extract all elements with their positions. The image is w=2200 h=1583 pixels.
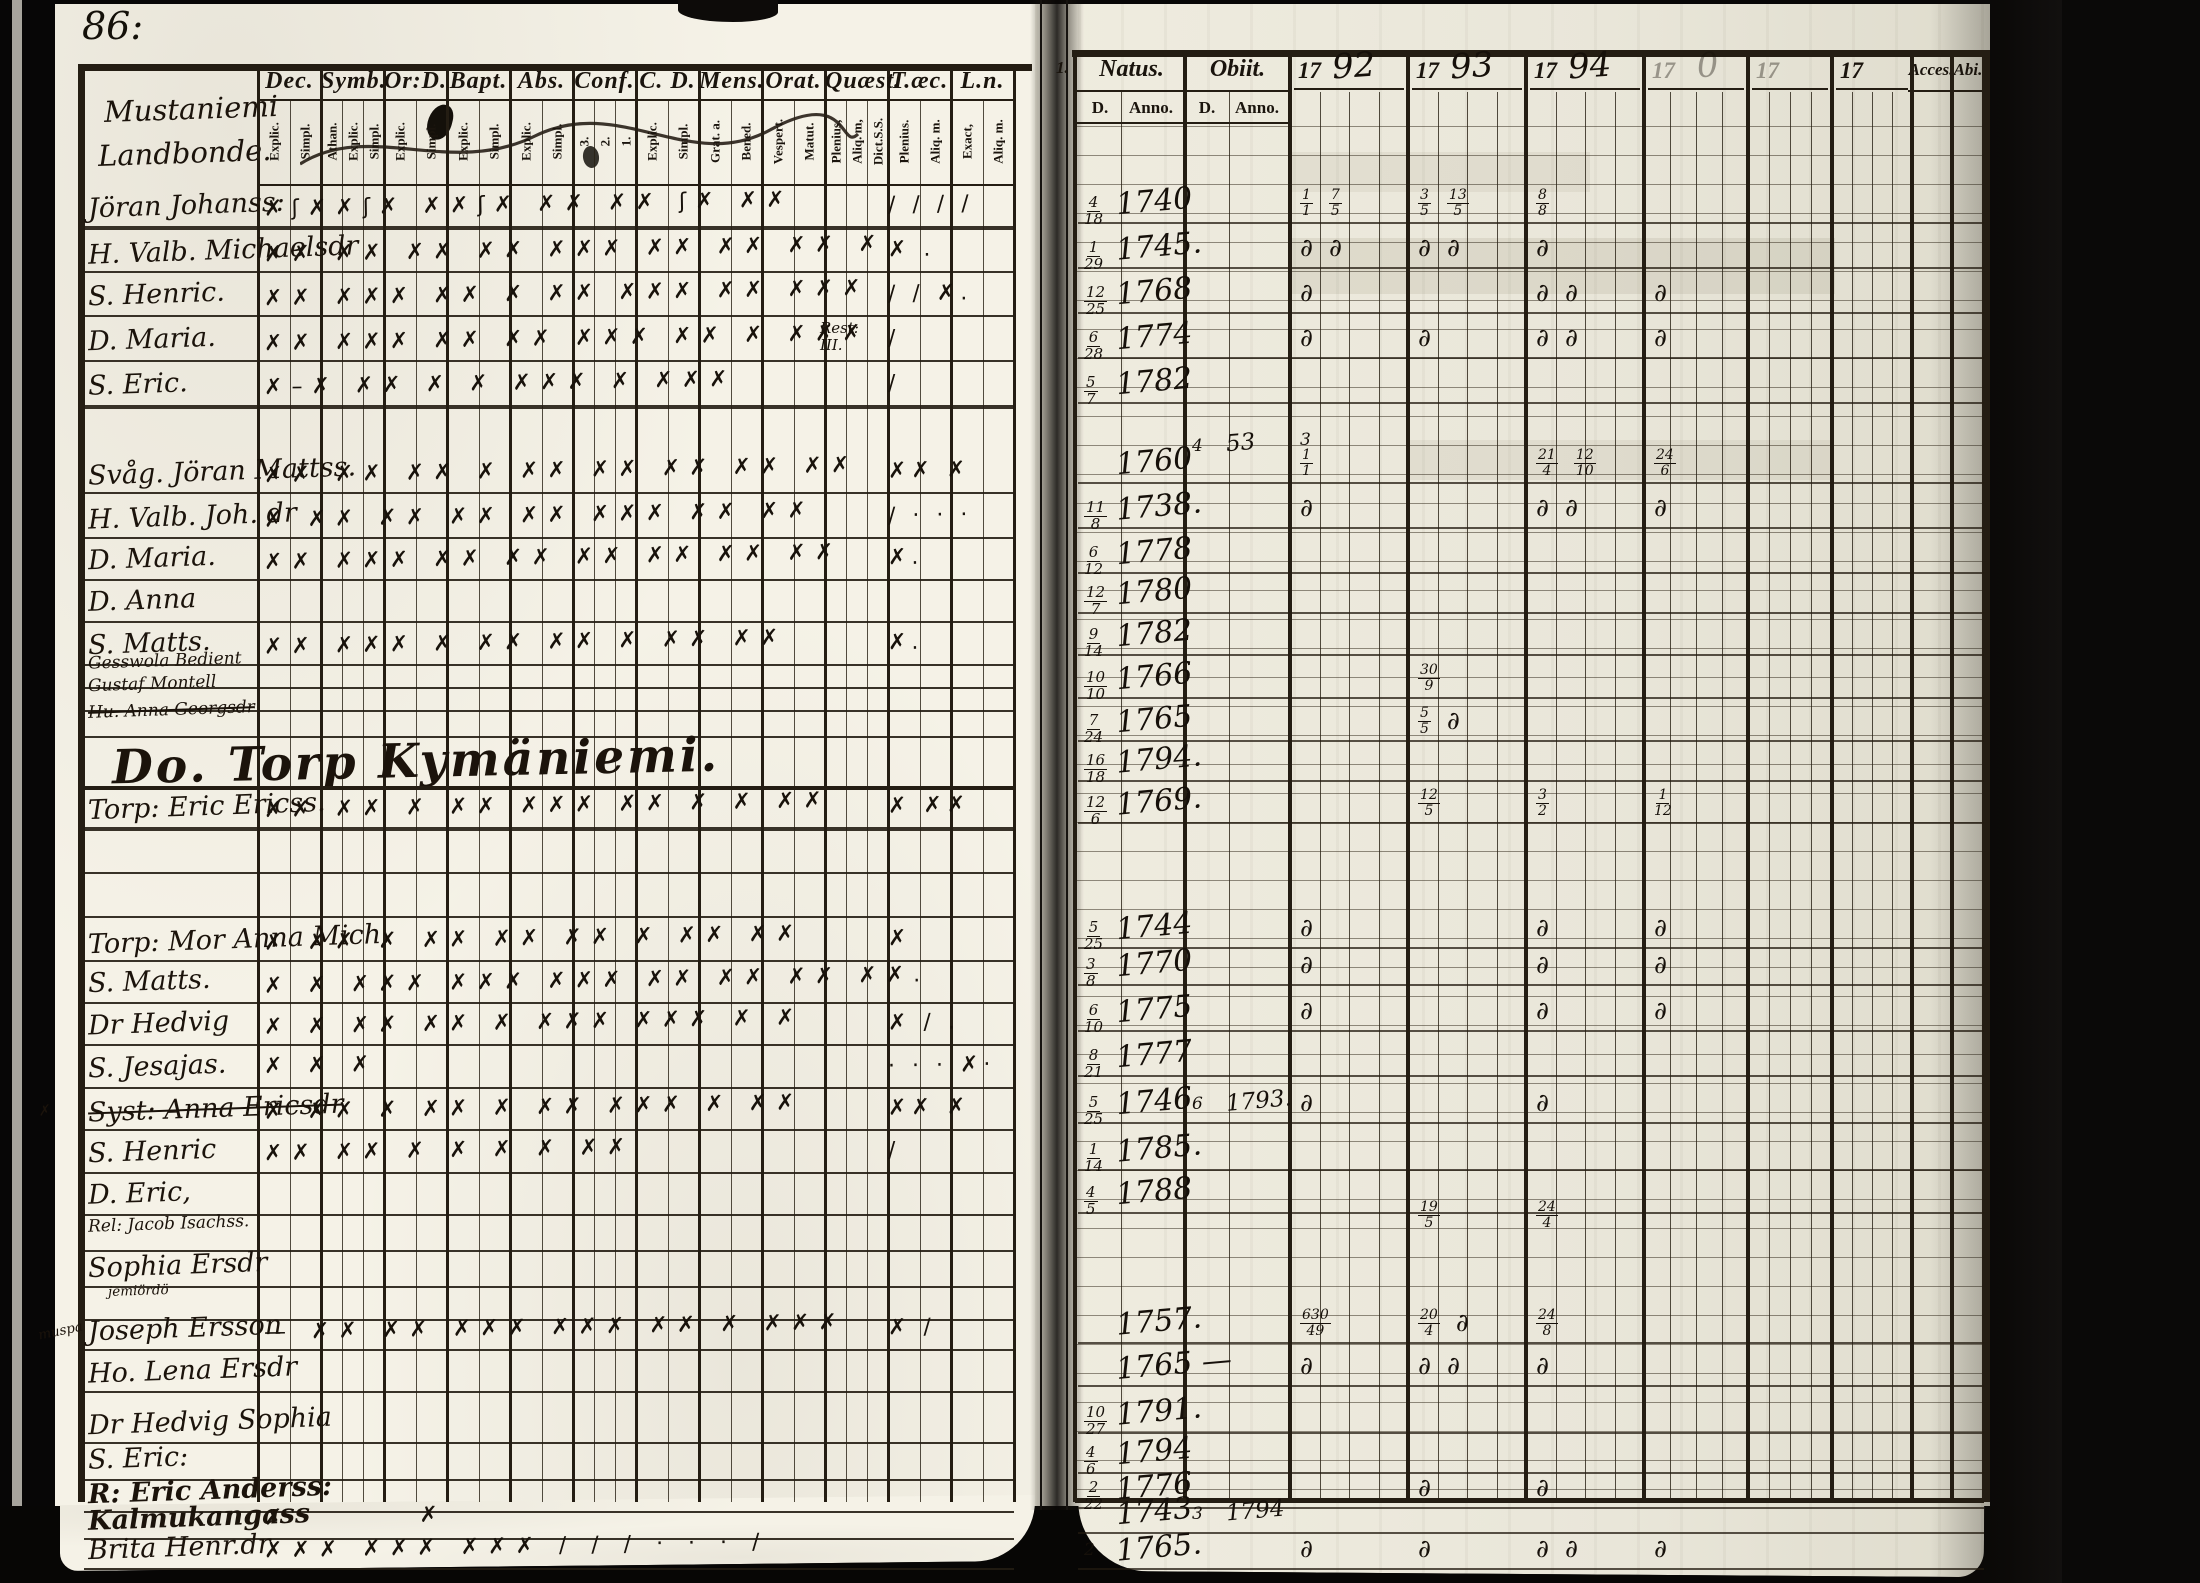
tail-marks: ✗ ✗✗ bbox=[888, 792, 971, 818]
year-label-printed: 17 bbox=[1416, 58, 1439, 84]
year-marks: 3 bbox=[1300, 430, 1400, 450]
fraction-denominator: 5 bbox=[1420, 722, 1429, 737]
birth-day: 38 bbox=[1084, 956, 1098, 990]
fraction-denominator: 5 bbox=[1424, 804, 1433, 819]
natus-d-subheader: D. bbox=[1082, 98, 1118, 118]
fraction-denominator: 4 bbox=[1424, 1324, 1433, 1339]
row-rule bbox=[84, 226, 1014, 230]
birth-day: 57 bbox=[1084, 374, 1098, 408]
tail-marks: ✗ . bbox=[888, 237, 936, 263]
sub-column-rule bbox=[1790, 92, 1791, 1502]
fraction-denominator: 10 bbox=[1086, 687, 1105, 703]
birth-day: 1010 bbox=[1084, 669, 1107, 703]
dito-mark: ∂ bbox=[1300, 278, 1313, 307]
year-marks: 2141210 bbox=[1536, 448, 1636, 478]
birth-day: 129 bbox=[1084, 239, 1103, 273]
right-page-border bbox=[1984, 50, 1990, 1502]
margin-note: ✗ bbox=[36, 1102, 50, 1120]
birth-day-fraction: 418 bbox=[1084, 195, 1103, 228]
sub-column-header: Aliq. m, bbox=[849, 101, 864, 183]
row-name: S. Henric. bbox=[88, 277, 226, 313]
dito-mark: ∂ bbox=[1300, 996, 1313, 1025]
fraction-denominator: 8 bbox=[1086, 974, 1096, 990]
sub-column-header: Explic. bbox=[644, 101, 659, 183]
fraction-numerator: 1 bbox=[1300, 448, 1313, 464]
birth-day: 2 bbox=[1084, 1540, 1095, 1560]
year-marks: ∂ bbox=[1300, 1351, 1400, 1380]
birth-day: 914 bbox=[1084, 626, 1103, 660]
sub-column-header: Bened. bbox=[739, 101, 754, 183]
row-rule bbox=[1078, 1532, 1984, 1534]
death-year: 53 bbox=[1225, 429, 1256, 457]
row-rule bbox=[1078, 1212, 1984, 1214]
dito-mark: ∂ bbox=[1300, 233, 1313, 262]
year-marks: 63049 bbox=[1300, 1308, 1400, 1338]
dito-mark: ∂ bbox=[1536, 233, 1549, 262]
dito-mark: ∂ bbox=[1654, 913, 1667, 942]
year-marks: ∂∂ bbox=[1536, 1534, 1636, 1563]
birth-day: 610 bbox=[1084, 1002, 1103, 1036]
header-rule bbox=[1294, 88, 1404, 90]
row-name: Dr Hedvig bbox=[88, 1006, 230, 1042]
dito-mark: ∂ bbox=[1447, 1351, 1460, 1380]
sub-column-header: Exact, bbox=[959, 101, 974, 183]
birth-year: 1768 bbox=[1115, 271, 1194, 313]
column-header: Quæst. bbox=[825, 68, 888, 95]
dito-mark: ∂ bbox=[1300, 1088, 1313, 1117]
gutter-fold-line bbox=[1066, 0, 1068, 1510]
sub-column-header: Simpl. bbox=[676, 101, 691, 183]
sub-column-header: Explic. bbox=[518, 101, 533, 183]
sub-column-header: Simpl. bbox=[424, 101, 439, 183]
year-marks: 204∂ bbox=[1418, 1308, 1518, 1338]
birth-year: 1745. bbox=[1115, 225, 1204, 267]
abiit-header: Abi. bbox=[1950, 60, 1986, 80]
year-marks: ∂∂ bbox=[1536, 323, 1636, 352]
dito-mark: ∂ bbox=[1418, 1351, 1431, 1380]
date-mark: 214 bbox=[1536, 448, 1558, 478]
dito-mark: ∂ bbox=[1536, 1351, 1549, 1380]
year-label-script: 93 bbox=[1449, 45, 1495, 88]
dito-mark: ∂ bbox=[1536, 950, 1549, 979]
sub-column-header: Matut. bbox=[802, 101, 817, 183]
header-rule bbox=[1530, 88, 1640, 90]
fraction-denominator: 5 bbox=[1420, 204, 1429, 219]
row-name: S. Jesajas. bbox=[88, 1049, 227, 1085]
date-mark: 248 bbox=[1536, 1308, 1558, 1338]
sub-column-header: Dict.S.S. bbox=[870, 101, 885, 183]
year-marks: 244 bbox=[1536, 1200, 1636, 1230]
year-marks: 309 bbox=[1418, 663, 1518, 693]
dito-mark: ∂ bbox=[1300, 323, 1313, 352]
death-year: 1794 bbox=[1225, 1495, 1286, 1526]
row-rule bbox=[1078, 1432, 1984, 1434]
date-mark: 88 bbox=[1536, 188, 1549, 218]
row-rule bbox=[84, 271, 1014, 273]
tail-marks: ✗. bbox=[888, 545, 924, 571]
row-rule bbox=[84, 1129, 1014, 1131]
row-name: D. Anna bbox=[87, 583, 196, 618]
fraction-numerator: 5 bbox=[1418, 706, 1431, 722]
death-day: 4 bbox=[1192, 436, 1203, 456]
tail-marks: ✗ / bbox=[888, 1315, 936, 1341]
sub-column-rule bbox=[867, 99, 868, 1502]
year-label-script: 94 bbox=[1567, 45, 1613, 88]
row-rule bbox=[84, 360, 1014, 362]
fraction-denominator: 6 bbox=[1091, 812, 1101, 828]
sub-column-header: Simpl. bbox=[550, 101, 565, 183]
dito-mark: ∂ bbox=[1418, 323, 1431, 352]
fraction-denominator: 25 bbox=[1084, 1112, 1103, 1128]
birth-day: 418 bbox=[1084, 194, 1103, 228]
tail-marks: / · · · bbox=[888, 502, 973, 528]
birth-year: 1744 bbox=[1115, 906, 1194, 948]
year-marks: ∂ bbox=[1536, 233, 1636, 262]
sub-column-header: 3. bbox=[576, 101, 591, 183]
dito-mark: ∂ bbox=[1654, 1534, 1667, 1563]
obiit-header: Obiit. bbox=[1185, 56, 1290, 83]
fraction-denominator: 49 bbox=[1306, 1324, 1324, 1339]
year-marks: ∂ bbox=[1536, 996, 1636, 1025]
row-rule bbox=[1078, 312, 1984, 314]
year-marks: ∂ bbox=[1300, 493, 1400, 522]
year-marks: ∂∂ bbox=[1300, 233, 1400, 262]
row-rule bbox=[84, 960, 1014, 962]
year-marks: ∂ bbox=[1536, 950, 1636, 979]
year-marks: 35135 bbox=[1418, 188, 1518, 218]
sub-column-rule bbox=[1852, 92, 1853, 1502]
row-rule bbox=[1078, 1075, 1984, 1077]
date-mark: 75 bbox=[1329, 188, 1342, 218]
tail-marks: ✗✗ ✗ bbox=[888, 457, 971, 483]
year-marks: ∂ bbox=[1300, 1534, 1400, 1563]
year-marks: ∂ bbox=[1654, 996, 1740, 1025]
header-rule bbox=[1412, 88, 1522, 90]
year-marks: ∂ bbox=[1418, 1534, 1518, 1563]
header-rule bbox=[1836, 88, 1908, 90]
dito-mark: ∂ bbox=[1418, 1534, 1431, 1563]
date-mark: 1210 bbox=[1574, 448, 1596, 478]
gutter-fold-line bbox=[1040, 0, 1042, 1510]
year-marks: ∂ bbox=[1536, 913, 1636, 942]
fraction-denominator: 4 bbox=[1542, 1216, 1551, 1231]
row-rule bbox=[1078, 402, 1984, 404]
year-label-printed: 17 bbox=[1840, 58, 1863, 84]
year-marks: ∂∂ bbox=[1418, 1351, 1518, 1380]
column-header: Or:D. bbox=[384, 68, 447, 95]
year-marks: ∂∂ bbox=[1418, 233, 1518, 262]
column-header: L.n. bbox=[951, 68, 1014, 95]
birth-year: 1778 bbox=[1115, 531, 1194, 573]
fraction-denominator: 5 bbox=[1086, 1202, 1096, 1218]
dito-mark: ∂ bbox=[1536, 323, 1549, 352]
acces-header: Acces. bbox=[1908, 60, 1954, 80]
birth-day-fraction: 612 bbox=[1084, 545, 1103, 578]
sub-column-header: Grat. a. bbox=[707, 101, 722, 183]
date-mark: 32 bbox=[1536, 788, 1549, 818]
birth-day-fraction: 525 bbox=[1084, 920, 1103, 953]
tail-marks: ✗ bbox=[888, 926, 912, 951]
year-marks: ∂∂ bbox=[1536, 278, 1636, 307]
row-name: D. Eric, bbox=[87, 1176, 191, 1211]
fraction-denominator: 18 bbox=[1086, 770, 1105, 786]
birth-year: 1769. bbox=[1115, 780, 1204, 822]
fraction-denominator: 8 bbox=[1542, 1324, 1551, 1339]
birth-year: 1743 bbox=[1115, 1491, 1194, 1533]
birth-year: 1794. bbox=[1115, 738, 1204, 780]
birth-year: 1782 bbox=[1115, 613, 1194, 655]
column-header: Orat. bbox=[762, 68, 825, 95]
fraction-denominator: 22 bbox=[1084, 1497, 1103, 1513]
sub-column-header: Explic. bbox=[392, 101, 407, 183]
sub-column-header: Vespert. bbox=[770, 101, 785, 183]
x-marks: ✗ ✗ ✗ bbox=[264, 1052, 379, 1079]
tail-marks: / / ✗. bbox=[888, 280, 973, 306]
tail-marks: / bbox=[888, 371, 901, 396]
year-marks: ∂ bbox=[1300, 323, 1400, 352]
fraction-numerator: 12 bbox=[1418, 788, 1440, 804]
row-rule bbox=[1078, 222, 1984, 224]
year-marks: ∂ bbox=[1300, 1088, 1400, 1117]
header-rule bbox=[258, 184, 1014, 186]
row-rule bbox=[84, 687, 1014, 689]
date-mark: 204 bbox=[1418, 1308, 1440, 1338]
year-label-script: 92 bbox=[1331, 45, 1377, 88]
row-rule bbox=[84, 492, 1014, 494]
row-rule bbox=[84, 872, 1014, 874]
dito-mark: ∂ bbox=[1536, 913, 1549, 942]
dito-mark: ∂ bbox=[1536, 996, 1549, 1025]
year-marks: ∂ bbox=[1300, 996, 1400, 1025]
year-label-printed: 17 bbox=[1652, 58, 1675, 84]
scan-edge-streak bbox=[12, 0, 22, 1583]
year-marks: 248 bbox=[1536, 1308, 1636, 1338]
fraction-numerator: 7 bbox=[1329, 188, 1342, 204]
natus-anno-subheader: Anno. bbox=[1120, 98, 1182, 118]
row-rule bbox=[1078, 267, 1984, 269]
header-rule bbox=[1648, 88, 1744, 90]
column-header: T.æc. bbox=[888, 68, 951, 95]
row-rule bbox=[84, 405, 1014, 409]
year-marks: ∂ bbox=[1536, 1351, 1636, 1380]
sub-column-header: 1. bbox=[618, 101, 633, 183]
birth-day-fraction: 1010 bbox=[1084, 670, 1107, 703]
birth-year: 1760 bbox=[1115, 441, 1194, 483]
birth-day: 222 bbox=[1084, 1479, 1103, 1513]
death-day: 3 bbox=[1192, 1504, 1203, 1524]
row-grid bbox=[1075, 126, 1984, 1502]
year-marks: 32 bbox=[1536, 788, 1636, 818]
fraction-numerator: 24 bbox=[1536, 1308, 1558, 1324]
year-marks: ∂ bbox=[1536, 1088, 1636, 1117]
date-mark: 11 bbox=[1300, 188, 1313, 218]
dito-mark: ∂ bbox=[1565, 323, 1578, 352]
birth-day: 127 bbox=[1084, 584, 1107, 618]
birth-day-fraction: 57 bbox=[1084, 375, 1098, 408]
year-marks: ∂ bbox=[1654, 950, 1740, 979]
fraction-denominator: 29 bbox=[1084, 257, 1103, 273]
year-marks: ∂ bbox=[1654, 493, 1740, 522]
year-marks: ∂ bbox=[1418, 1473, 1518, 1502]
fraction-denominator: 5 bbox=[1453, 204, 1462, 219]
fraction-denominator: 1 bbox=[1302, 464, 1311, 479]
row-rule bbox=[1078, 1507, 1984, 1509]
birth-day-fraction: 127 bbox=[1084, 585, 1107, 618]
row-rule bbox=[1078, 822, 1984, 824]
tail-marks: / / / / bbox=[888, 191, 974, 217]
sub-column-header: Aliq. m. bbox=[991, 101, 1006, 183]
date-mark: 135 bbox=[1447, 188, 1469, 218]
date-mark: 112 bbox=[1654, 788, 1672, 818]
birth-day: 126 bbox=[1084, 794, 1107, 828]
sub-column-rule bbox=[1769, 92, 1770, 1502]
dito-mark: ∂ bbox=[1654, 278, 1667, 307]
birth-day-fraction: 38 bbox=[1084, 957, 1098, 990]
dito-mark: ∂ bbox=[1300, 1351, 1313, 1380]
row-name: S. Eric: bbox=[87, 1441, 188, 1475]
fraction-denominator: 12 bbox=[1084, 562, 1103, 578]
birth-day-fraction: 222 bbox=[1084, 1480, 1103, 1513]
row-name: D. Maria. bbox=[87, 322, 216, 357]
row-rule bbox=[1078, 572, 1984, 574]
column-header: Symb. bbox=[321, 68, 384, 95]
birth-day: 612 bbox=[1084, 544, 1103, 578]
birth-day: 724 bbox=[1084, 712, 1103, 746]
fraction-numerator: 1 bbox=[1656, 788, 1669, 804]
death-day-fraction: 4 bbox=[1192, 436, 1203, 456]
sub-column-rule bbox=[1892, 92, 1893, 1502]
dito-mark: ∂ bbox=[1565, 493, 1578, 522]
fraction-denominator: 12 bbox=[1654, 804, 1672, 819]
birth-year: 1766 bbox=[1115, 656, 1194, 698]
row-rule bbox=[1078, 612, 1984, 614]
fraction-denominator: 27 bbox=[1086, 1422, 1105, 1438]
sub-column-rule bbox=[983, 99, 984, 1502]
dito-mark: ∂ bbox=[1654, 950, 1667, 979]
row-rule bbox=[84, 1002, 1014, 1004]
sub-column-header: Plenius, bbox=[828, 101, 843, 183]
row-name: Brita Henr.dr bbox=[88, 1529, 272, 1566]
fraction-denominator: 24 bbox=[1084, 730, 1103, 746]
birth-day-fraction: 126 bbox=[1084, 795, 1107, 828]
dito-mark: ∂ bbox=[1536, 1088, 1549, 1117]
fraction-numerator: 20 bbox=[1418, 1308, 1440, 1324]
birth-year: 1785. bbox=[1115, 1127, 1204, 1169]
year-marks: ∂ bbox=[1654, 278, 1740, 307]
row-rule bbox=[1078, 1568, 1984, 1570]
fraction-numerator: 12 bbox=[1574, 448, 1596, 464]
column-header: Bapt. bbox=[447, 68, 510, 95]
sub-column-header: Aliq. m. bbox=[928, 101, 943, 183]
quaest-note: Rest: III. bbox=[820, 320, 859, 355]
natus-header: Natus. bbox=[1078, 56, 1185, 83]
dito-mark: ∂ bbox=[1654, 323, 1667, 352]
sub-column-header: Simpl. bbox=[366, 101, 381, 183]
sub-column-header: Simpl. bbox=[298, 101, 313, 183]
dito-mark: ∂ bbox=[1300, 493, 1313, 522]
birth-day: 1618 bbox=[1084, 752, 1107, 786]
birth-day: 821 bbox=[1084, 1047, 1103, 1081]
birth-day-fraction: 118 bbox=[1084, 500, 1107, 533]
fraction-numerator: 24 bbox=[1654, 448, 1676, 464]
birth-year: 1775 bbox=[1115, 989, 1194, 1031]
sub-column-header: Explic. bbox=[455, 101, 470, 183]
sub-column-header: Plenius. bbox=[896, 101, 911, 183]
row-rule bbox=[84, 1087, 1014, 1089]
fraction-denominator: 7 bbox=[1086, 392, 1096, 408]
right-table-bottom-border bbox=[1075, 1498, 1984, 1503]
fraction-denominator: 8 bbox=[1091, 517, 1101, 533]
year-marks: ∂ bbox=[1300, 278, 1400, 307]
year-marks: ∂ bbox=[1654, 323, 1740, 352]
dito-mark: ∂ bbox=[1447, 233, 1460, 262]
fraction-denominator: 10 bbox=[1576, 464, 1594, 479]
row-rule bbox=[84, 315, 1014, 317]
birth-day-fraction: 610 bbox=[1084, 1003, 1103, 1036]
row-rule bbox=[84, 1442, 1014, 1444]
birth-day-fraction: 914 bbox=[1084, 627, 1103, 660]
year-marks: ∂ bbox=[1654, 1534, 1740, 1563]
fraction-numerator: 3 bbox=[1418, 188, 1431, 204]
row-rule bbox=[84, 916, 1014, 918]
x-marks: ✗ ✗ bbox=[264, 1502, 447, 1530]
row-prefix: 1. bbox=[1056, 58, 1069, 78]
row-rule bbox=[1078, 1385, 1984, 1387]
birth-day-fraction: 724 bbox=[1084, 713, 1103, 746]
fraction-denominator: 25 bbox=[1084, 937, 1103, 953]
row-rule bbox=[84, 827, 1014, 831]
row-rule bbox=[1078, 740, 1984, 742]
birth-day-fraction: 45 bbox=[1084, 1185, 1098, 1218]
row-rule bbox=[1078, 482, 1984, 484]
birth-day: 525 bbox=[1084, 919, 1103, 953]
fraction-denominator: 5 bbox=[1424, 1216, 1433, 1231]
row-rule bbox=[1078, 527, 1984, 529]
fraction-numerator: 19 bbox=[1418, 1200, 1440, 1216]
fraction-numerator: 21 bbox=[1536, 448, 1558, 464]
obiit-d-subheader: D. bbox=[1188, 98, 1226, 118]
year-label-printed: 17 bbox=[1534, 58, 1557, 84]
year-marks: ∂∂ bbox=[1536, 493, 1636, 522]
year-marks: 195 bbox=[1418, 1200, 1518, 1230]
tail-marks: / bbox=[888, 1138, 901, 1163]
year-marks: 246 bbox=[1654, 448, 1740, 478]
birth-year: 1777 bbox=[1115, 1034, 1194, 1076]
year-marks: 55∂ bbox=[1418, 706, 1518, 736]
birth-year: 1791. bbox=[1115, 1390, 1204, 1432]
year-marks: ∂ bbox=[1418, 323, 1518, 352]
column-header: Conf. bbox=[573, 68, 636, 95]
birth-day-fraction: 1027 bbox=[1084, 1405, 1107, 1438]
birth-year: 1757. bbox=[1115, 1300, 1204, 1342]
year-marks: ∂ bbox=[1300, 913, 1400, 942]
dito-mark: ∂ bbox=[1329, 233, 1342, 262]
birth-day-fraction: 46 bbox=[1084, 1445, 1098, 1478]
birth-day-fraction: 628 bbox=[1084, 330, 1103, 363]
column-header: Mens. bbox=[699, 68, 762, 95]
obiit-anno-subheader: Anno. bbox=[1228, 98, 1286, 118]
tail-marks: · · · ✗· bbox=[888, 1052, 996, 1079]
birth-year: 1780 bbox=[1115, 571, 1194, 613]
row-rule bbox=[1078, 780, 1984, 782]
column-rule bbox=[1073, 50, 1077, 1502]
dito-mark: ∂ bbox=[1418, 1473, 1431, 1502]
row-name: S. Matts. bbox=[87, 964, 211, 999]
birth-year: 1746 bbox=[1115, 1081, 1194, 1123]
sub-column-rule bbox=[1811, 92, 1812, 1502]
tail-marks: ✗✗ ✗ bbox=[888, 1094, 971, 1120]
birth-day: 1225 bbox=[1084, 284, 1107, 318]
